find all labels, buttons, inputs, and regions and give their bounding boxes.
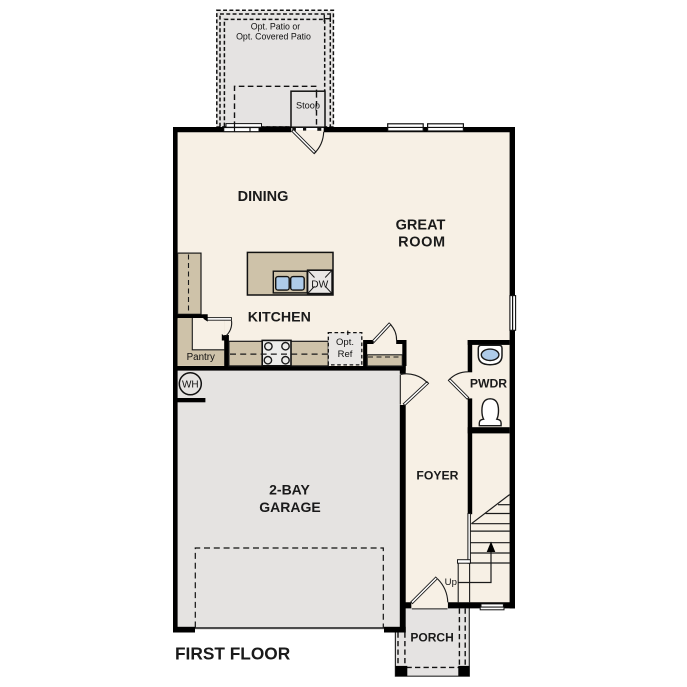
svg-text:GREAT: GREAT <box>396 218 446 234</box>
svg-text:PWDR: PWDR <box>470 377 507 391</box>
svg-text:FOYER: FOYER <box>416 469 458 483</box>
svg-text:GARAGE: GARAGE <box>259 499 320 515</box>
svg-text:2-BAY: 2-BAY <box>269 482 310 498</box>
svg-text:Ref: Ref <box>338 349 353 360</box>
svg-text:Opt.: Opt. <box>336 337 354 348</box>
svg-text:Opt. Patio or: Opt. Patio or <box>251 22 300 32</box>
svg-text:Up: Up <box>445 577 457 588</box>
svg-text:PORCH: PORCH <box>410 631 453 645</box>
svg-text:DINING: DINING <box>238 189 289 205</box>
svg-text:FIRST FLOOR: FIRST FLOOR <box>175 644 291 664</box>
svg-text:ROOM: ROOM <box>398 235 446 251</box>
svg-text:Pantry: Pantry <box>187 352 215 363</box>
svg-text:WH: WH <box>182 379 199 390</box>
svg-text:DW: DW <box>311 279 328 290</box>
svg-text:Opt. Covered Patio: Opt. Covered Patio <box>236 32 311 42</box>
svg-text:KITCHEN: KITCHEN <box>248 310 311 326</box>
svg-text:Stoop: Stoop <box>296 101 320 111</box>
